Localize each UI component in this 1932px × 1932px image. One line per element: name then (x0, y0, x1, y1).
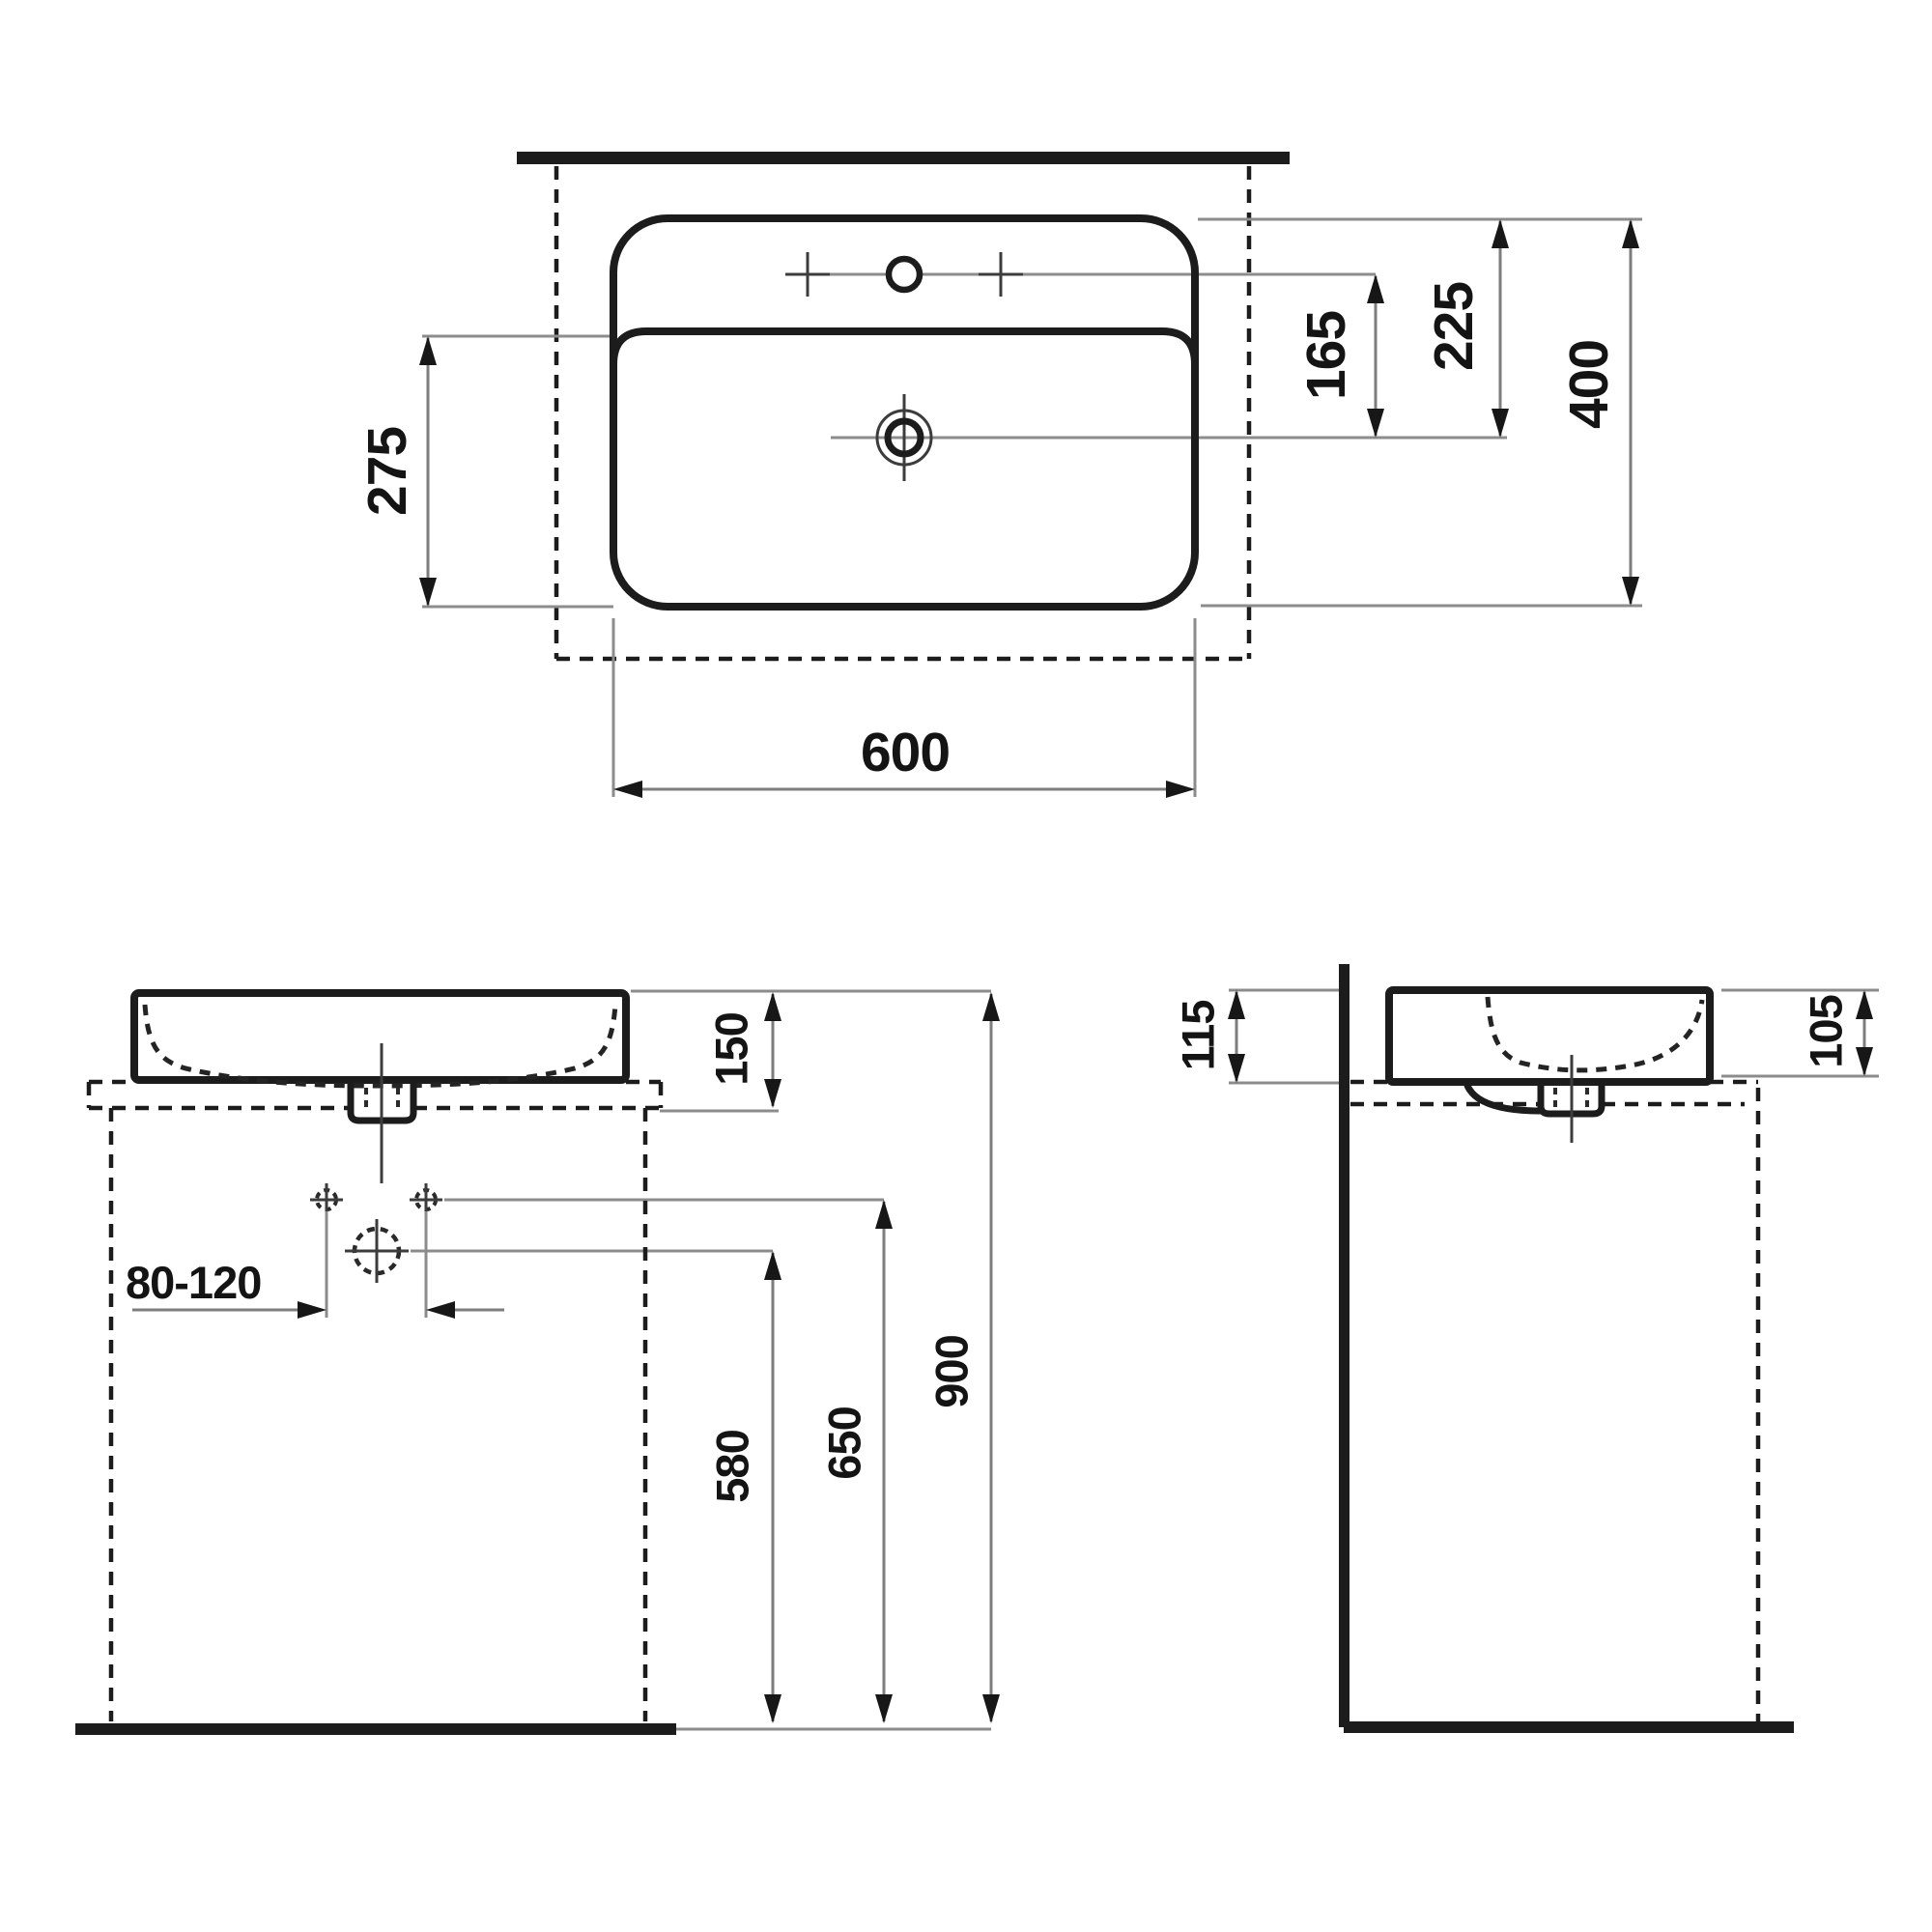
dim-drain-offset-80-120: 80-120 (126, 1211, 504, 1319)
bowl-divider (613, 331, 1195, 364)
dim-rear-rim-115: 115 (1172, 990, 1245, 1083)
dim-label-150: 150 (705, 1012, 756, 1085)
dim-supply-height-650: 650 (818, 1200, 893, 1723)
wall-line-side (1339, 964, 1350, 1727)
dim-drain-height-580: 580 (706, 1251, 781, 1723)
washbasin-dimension-drawing: 275 165 225 400 600 (0, 0, 1932, 1932)
dim-label-600: 600 (861, 722, 950, 783)
water-supply-icon-right (410, 1183, 442, 1216)
dim-label-650: 650 (818, 1406, 869, 1479)
floor-line-front (75, 1723, 676, 1735)
dim-front-rim-105: 105 (1800, 990, 1873, 1076)
alt-faucet-cross-right (979, 252, 1023, 297)
dim-label-165: 165 (1295, 311, 1357, 400)
dim-label-400: 400 (1558, 340, 1620, 429)
basin-outline-side (1389, 990, 1710, 1082)
dim-width-600: 600 (613, 722, 1195, 798)
dim-label-115: 115 (1172, 1001, 1223, 1071)
dim-basin-height-150: 150 (705, 992, 781, 1108)
dim-rim-height-900: 900 (925, 992, 1000, 1723)
top-view: 275 165 225 400 600 (356, 152, 1642, 798)
dim-label-580: 580 (706, 1430, 757, 1502)
dim-tap-drain-165: 165 (1295, 274, 1384, 438)
dim-label-225: 225 (1423, 282, 1485, 371)
front-view: 150 80-120 580 650 (75, 991, 1000, 1735)
dim-label-80-120: 80-120 (126, 1257, 261, 1308)
outlet-curve (1466, 1083, 1541, 1111)
counter-dashed-side (1350, 1082, 1758, 1721)
dim-edge-drain-225: 225 (1423, 219, 1509, 438)
water-supply-icon-left (310, 1183, 343, 1216)
dim-bowl-front-275: 275 (356, 336, 437, 607)
bowl-contour-side (1488, 997, 1702, 1070)
faucet-hole-icon (889, 259, 920, 290)
alt-faucet-cross-left (785, 252, 830, 297)
dim-depth-400: 400 (1558, 219, 1639, 606)
dim-label-105: 105 (1800, 995, 1851, 1067)
floor-line-side (1344, 1721, 1794, 1733)
waste-outlet-icon (345, 1219, 409, 1283)
dim-label-900: 900 (925, 1335, 977, 1407)
side-view: 115 105 (1172, 964, 1879, 1733)
dim-label-275: 275 (356, 427, 418, 516)
technical-drawing-page: 275 165 225 400 600 (0, 0, 1932, 1932)
wall-line (517, 152, 1290, 164)
counter-dashed-front (89, 1082, 661, 1721)
